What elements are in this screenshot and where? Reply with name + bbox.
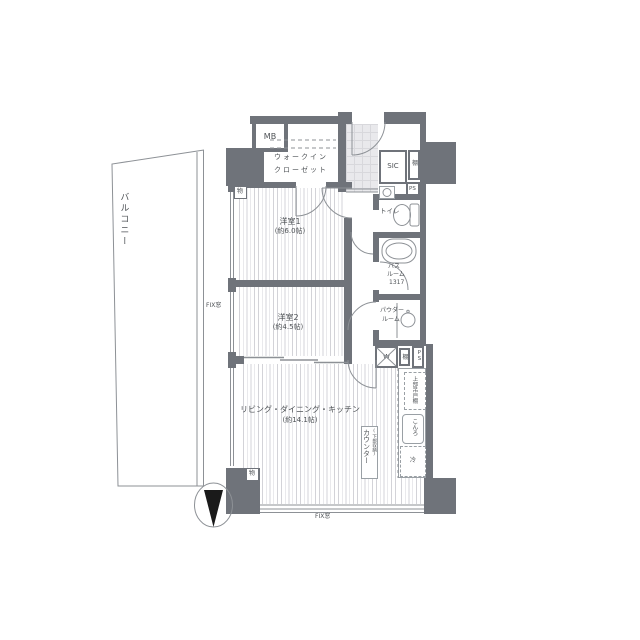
bath-label-line2: ルーム — [387, 272, 405, 279]
toilet-label: トイレ — [380, 208, 400, 215]
bedroom2-name: 洋室2 — [258, 313, 318, 322]
entrance-door-arc — [352, 122, 385, 155]
powder-label-line2: ルーム — [382, 317, 400, 324]
sink-icon — [401, 313, 415, 327]
wic-label-line1: ウォークイン — [268, 153, 334, 161]
ldk-size: (約14.1帖) — [225, 416, 375, 424]
fix-window-label-west: FIX窓 — [206, 303, 221, 310]
toilet-door-arc — [351, 232, 373, 254]
north-arrow-icon — [204, 490, 223, 527]
bedroom1-name: 洋室1 — [260, 217, 320, 226]
bath-label-line1: バス — [388, 264, 400, 271]
toilet-icon — [410, 204, 419, 226]
faucet-icon — [407, 310, 409, 312]
powder-label-line1: パウダー — [380, 308, 404, 315]
balcony-label: バルコニー — [118, 192, 128, 247]
fix-window-label-south: FIX窓 — [315, 514, 330, 521]
bedroom2-size: (約4.5帖) — [258, 323, 318, 331]
hand-basin-icon — [383, 189, 391, 197]
wic-door-arc — [296, 186, 326, 216]
powder-door-arc — [348, 302, 376, 330]
bathtub-icon — [386, 243, 412, 259]
ldk-name: リビング・ダイニング・キッチン — [225, 405, 375, 414]
bedroom1-size: (約6.0帖) — [260, 227, 320, 235]
floor-plan: MB SIC 棚 PS W 棚 PS 物 物 上部吊戸棚 こんろ 冷 カウンター… — [0, 0, 640, 640]
ldk-door-arc — [348, 360, 376, 388]
washer-x-icon — [377, 348, 396, 366]
wic-label-line2: クローゼット — [268, 166, 334, 174]
plan-linework — [0, 0, 640, 640]
bath-label-line3: 1317 — [389, 280, 404, 287]
